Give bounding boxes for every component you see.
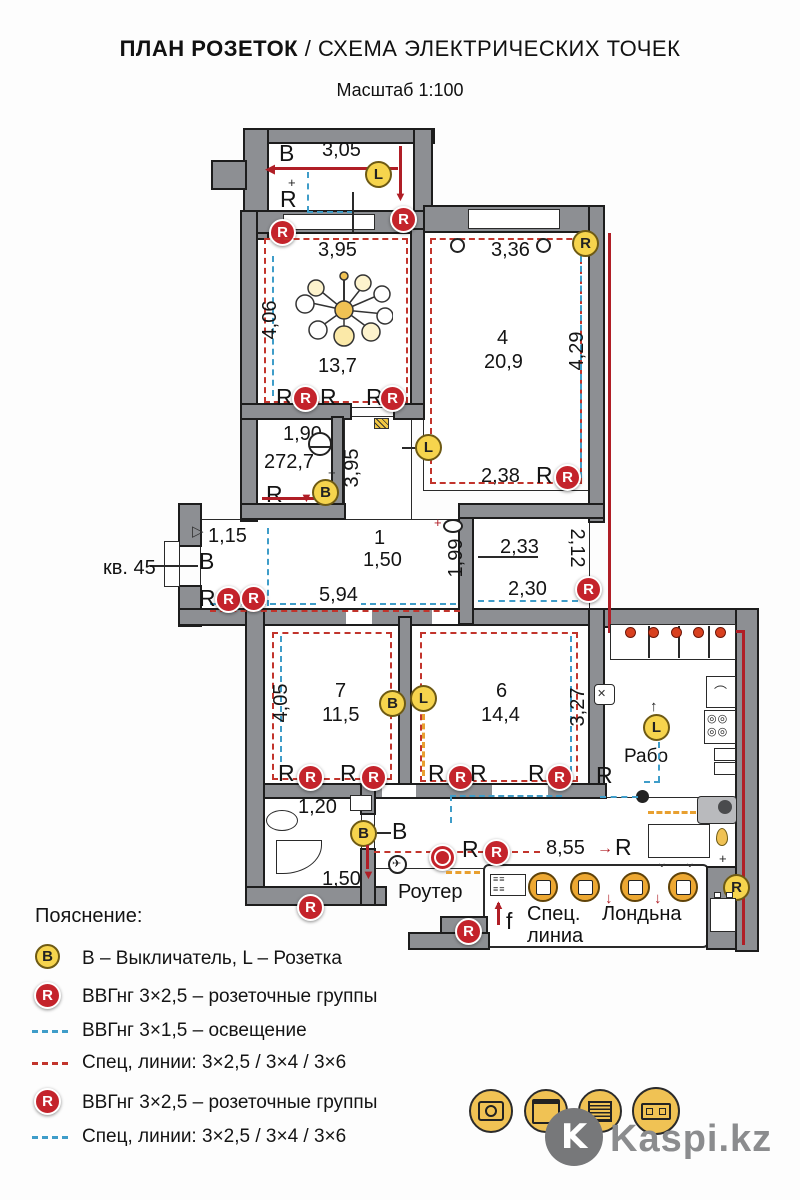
room2-label: 272,7 [264,452,314,472]
hall-number: 1 [374,528,385,548]
page-title-main: ПЛАН РОЗЕТОК [120,36,299,61]
area-room6: 14,4 [481,705,520,725]
door-swing: ▷ [192,524,204,539]
brand-label: Kaspi.kz [610,1118,772,1161]
lighting-line [307,172,309,212]
dim-wc-bottom: 2,30 [508,579,547,599]
socket-letter: R [276,386,293,409]
legend-lighting-dash [32,1030,68,1033]
appliance-glyph [676,880,691,895]
ceiling-light [450,238,465,253]
spec-orange-line [422,714,425,776]
wall [245,608,265,906]
spec-line-label-2: линиа [527,925,583,948]
socket-letter: R [278,762,295,785]
lighting-line [658,742,660,782]
area-room7: 11,5 [322,705,359,725]
legend-row-text: Спец, линии: 3×2,5 / 3×4 / 3×6 [82,1052,346,1074]
spec-orange-line [446,871,480,874]
recorder-body [641,1103,671,1120]
appliance-glyph [628,880,643,895]
socket-group-marker: R [292,385,319,412]
sink-icon [308,432,332,456]
recorder-knob [646,1108,653,1115]
laundry-toilet-icon [710,898,736,932]
socket-letter: R [199,587,216,610]
lighting-line [450,795,452,823]
legend-heading: Пояснение: [35,905,142,928]
drawer-icon [714,748,736,761]
appliance-glyph [578,880,593,895]
appliance-marker [528,872,558,902]
sink-line [310,446,330,448]
kaspi-logo-glyph: K [561,1117,587,1157]
socket-dot [693,627,704,638]
lighting-line [267,528,269,606]
bath-switch-label: В [392,820,407,843]
appliance-marker [668,872,698,902]
legend-row-text: ВВГнг 3×1,5 – освещение [82,1020,307,1042]
arrow-right: → [597,841,613,857]
dim-balcony: 3,05 [322,140,361,160]
plus-mark: + [328,466,336,479]
dim-bath-w: 1,20 [298,797,337,817]
socket-group-marker: R [390,206,417,233]
socket-letter: R [340,762,357,785]
socket-letter: R [320,386,337,409]
area-room4: 20,9 [484,352,523,372]
arrow-up: ▲ [492,898,505,911]
socket-dot [648,627,659,638]
hall-area: 1,50 [363,550,402,570]
socket-letter: R [536,464,553,487]
area-living: 13,7 [318,356,357,376]
legend-socket-badge: R [34,1088,61,1115]
chair-arc: ⌄ [656,854,668,871]
dim-room6-h: 3,27 [568,675,588,739]
floor-plan-page: ПЛАН РОЗЕТОК / СХЕМА ЭЛЕКТРИЧЕСКИХ ТОЧЕК… [0,0,800,1200]
divider-line [478,556,538,558]
vent-cross: ✕ [597,687,606,700]
lighting-line [307,211,353,213]
appliance-glyph [536,880,551,895]
dim-corridor: 8,55 [546,838,585,858]
lighting-line [644,781,660,783]
balcony-switch-label: В [279,142,294,165]
socket-group-marker: R [379,385,406,412]
small-fixture [714,892,721,898]
small-fixture [726,892,733,898]
spec-dash [512,851,540,853]
entry-door [164,541,180,587]
dim-entry: 1,15 [208,526,247,546]
dim-wc-top: 2,33 [500,537,539,557]
window-tick [352,192,354,232]
work-zone-label: Рабо [624,746,668,768]
door-gap [346,610,372,624]
arrow-down: ▼ [300,491,313,504]
socket-letter: R [470,762,487,785]
plus-mark: + [719,852,727,865]
socket-letter: R [280,188,297,211]
socket-letter: R [596,764,613,787]
arrow-down: ▼ [394,190,407,203]
socket-group-marker: R [240,585,267,612]
door-gap [382,785,416,797]
stove-burners: ◎◎◎◎ [707,712,728,738]
camera-lens [485,1105,497,1117]
dim-hall-w: 5,94 [316,585,361,605]
dim-wc-side: 2,12 [567,516,587,580]
panel-lines: ≡≡≡≡ [493,874,506,894]
socket-group-marker: R [546,764,573,791]
dim-room4-bottom: 2,38 [481,466,520,486]
room6-number: 6 [496,681,507,701]
callout-line [150,565,198,567]
dim-mid-v: 3,95 [342,436,362,500]
dim-room4-h: 4,29 [567,319,587,383]
spec-line-label-1: Спец. [527,903,580,926]
door-gap [432,610,458,624]
scale-label: Масштаб 1:100 [0,80,800,101]
socket-letter: R [462,838,479,861]
arrow-down: ▼ [362,868,375,881]
router-label: Роутер [398,881,463,904]
socket-marker-l: L [410,685,437,712]
spec-line [366,845,369,869]
dim-room7-h: 4,05 [271,671,291,735]
hall-switch-label: В [199,550,214,573]
laundry-label: Лондьна [602,903,682,926]
socket-dot [715,627,726,638]
window [468,209,560,229]
drawer-icon [714,762,736,775]
switch-marker: B [312,479,339,506]
socket-group-marker: R [455,918,482,945]
legend-switch-badge: B [35,944,60,969]
chandelier-icon [295,268,393,354]
socket-letter: R [528,762,545,785]
spec-orange-line [648,811,696,814]
appliance-marker [620,872,650,902]
wall [211,160,247,190]
socket-group-marker-yellow: R [572,230,599,257]
plus-mark: + [434,516,442,529]
lighting-line [450,795,562,797]
socket-dot [671,627,682,638]
router-glyph: ✈ [392,857,401,870]
fridge-handle: ⌒ [714,682,727,701]
socket-group-marker: R [360,764,387,791]
appliance-marker [570,872,600,902]
socket-letter: R [615,836,632,859]
socket-letter: R [428,762,445,785]
switch-marker: B [379,690,406,717]
socket-marker-l: L [365,161,392,188]
page-title: ПЛАН РОЗЕТОК / СХЕМА ЭЛЕКТРИЧЕСКИХ ТОЧЕК [0,36,800,62]
legend-row-text: ВВГнг 3×2,5 – розеточные группы [82,986,377,1008]
switch-marker: B [350,820,377,847]
spec-line-vertical [608,233,611,632]
table-icon [648,824,710,858]
socket-marker-l: L [643,714,670,741]
wall [410,228,425,420]
peephole-icon [443,519,463,533]
oven-knob [718,800,732,814]
socket-group-marker: R [554,464,581,491]
arrow-up: ↑ [650,698,658,715]
counter-divider [708,626,710,658]
dim-room4-w: 3,36 [488,240,533,260]
pendant-icon [716,828,728,846]
legend-spec-dash [32,1062,68,1065]
legend-spec-dash-blue [32,1136,68,1139]
room7-number: 7 [335,681,346,701]
hatch-mark [374,418,389,429]
apartment-label: кв. 45 [103,557,156,580]
washer-glyph [434,849,451,866]
recorder-knob [659,1108,666,1115]
wall [240,210,258,522]
wall [240,503,346,520]
kaspi-logo-icon: K [545,1108,603,1166]
ceiling-light [536,238,551,253]
f-mark: f [506,910,512,933]
washing-machine-marker [429,844,456,871]
socket-group-marker: R [483,839,510,866]
legend-row-text: Спец, линии: 3×2,5 / 3×4 / 3×6 [82,1126,346,1148]
dim-living-w: 3,95 [315,240,360,260]
room4-number: 4 [497,328,508,348]
legend-row-text: В – Выкличатель, L – Розетка [82,948,342,970]
legend-row-text: ВВГнг 3×2,5 – розеточные группы [82,1092,377,1114]
window [283,214,375,230]
socket-group-marker: R [215,586,242,613]
camera-body [478,1101,504,1121]
dim-bath-s: 1,50 [322,869,361,889]
arrow-left: ◀ [265,162,275,175]
dim-line [399,146,402,194]
socket-dot [625,627,636,638]
connector-line [377,832,391,834]
cistern-icon [350,795,372,811]
lighting-line [600,796,638,798]
chair-arc: ⌄ [684,854,696,871]
lighting-line [478,600,578,602]
toilet-icon [266,810,298,831]
dim-hall-right: 1,99 [446,526,466,590]
page-title-rest: / СХЕМА ЭЛЕКТРИЧЕСКИХ ТОЧЕК [305,36,681,61]
dim-living-h: 4,06 [260,288,280,352]
socket-letter: R [266,483,283,506]
socket-group-marker: R [575,576,602,603]
camera-icon [469,1089,513,1133]
socket-group-marker: R [297,764,324,791]
socket-group-marker: R [297,894,324,921]
socket-marker-l: L [415,434,442,461]
legend-socket-badge: R [34,982,61,1009]
